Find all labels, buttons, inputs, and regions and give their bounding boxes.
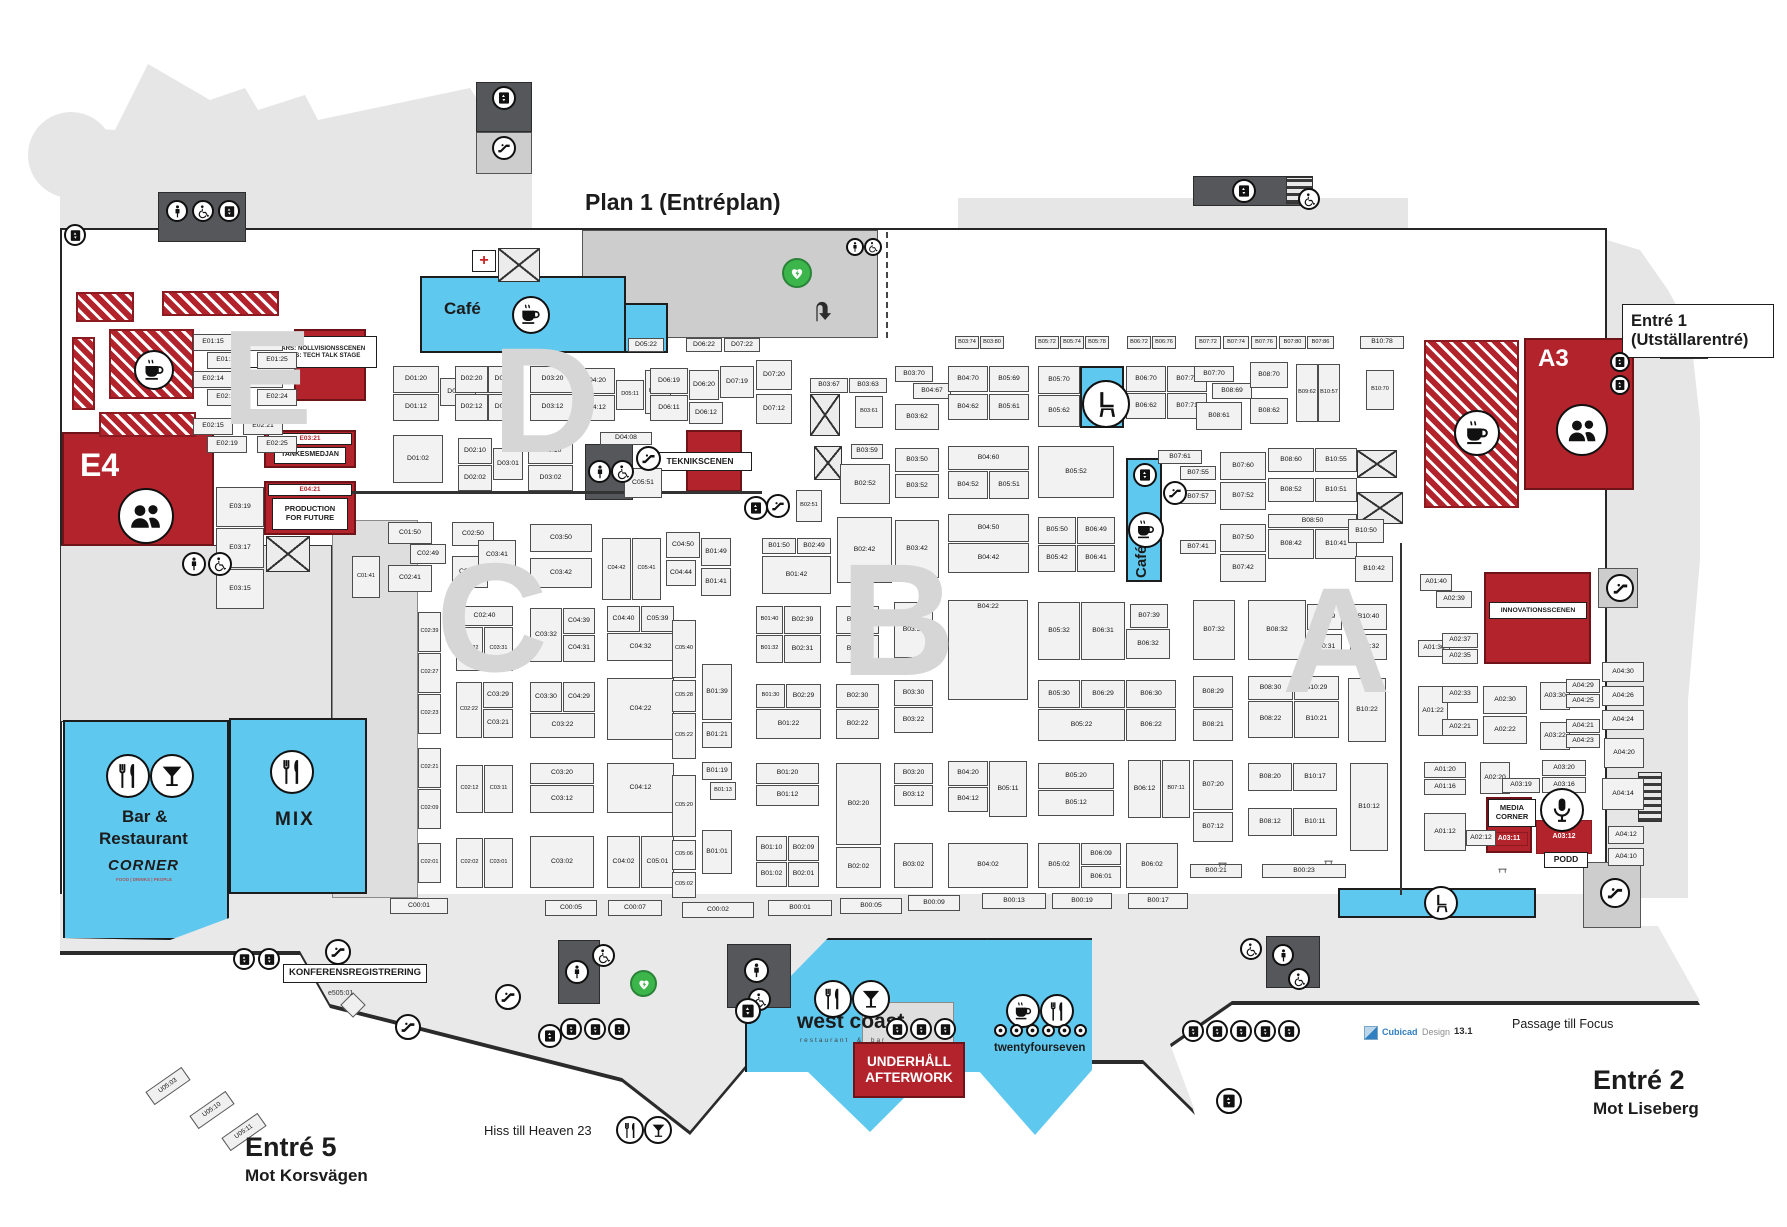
booth-B08:12: B08:12 bbox=[1248, 808, 1292, 836]
booth-C05:22: C05:22 bbox=[672, 713, 696, 759]
booth-C00:07: C00:07 bbox=[608, 900, 662, 916]
coffee-icon bbox=[512, 296, 550, 334]
booth-A04:14: A04:14 bbox=[1602, 778, 1644, 810]
booth-B05:20: B05:20 bbox=[1038, 763, 1114, 789]
escalator-icon bbox=[492, 136, 516, 160]
booth-B05:42: B05:42 bbox=[1038, 545, 1076, 572]
booth-B01:10: B01:10 bbox=[756, 836, 787, 861]
booth-D02:12: D02:12 bbox=[455, 394, 488, 421]
martini-icon bbox=[852, 980, 890, 1018]
booth-B06:70: B06:70 bbox=[1126, 366, 1166, 392]
booth-C05:20: C05:20 bbox=[672, 775, 696, 837]
booth-B07:11: B07:11 bbox=[1162, 760, 1190, 818]
booth-A02:39: A02:39 bbox=[1436, 591, 1472, 608]
escalator-icon bbox=[1600, 878, 1630, 908]
table-icon bbox=[1214, 856, 1230, 872]
booth-B03:63: B03:63 bbox=[849, 378, 887, 393]
chair-icon bbox=[1082, 380, 1130, 428]
booth-C02:09: C02:09 bbox=[418, 789, 441, 829]
booth-B07:74: B07:74 bbox=[1223, 336, 1249, 349]
coffee-icon bbox=[1006, 994, 1040, 1028]
booth-B05:70: B05:70 bbox=[1038, 366, 1080, 394]
booth-B04:60: B04:60 bbox=[948, 446, 1029, 470]
booth-B03:61: B03:61 bbox=[855, 396, 883, 428]
booth-B06:76: B06:76 bbox=[1152, 336, 1176, 349]
elevator-icon bbox=[744, 496, 768, 520]
map-label: Passage till Focus bbox=[1512, 1018, 1613, 1032]
booth-B08:62: B08:62 bbox=[1250, 398, 1288, 424]
hall-letter-A: A bbox=[1282, 565, 1390, 715]
hall-letter-B: B bbox=[840, 540, 956, 700]
booth-B05:51: B05:51 bbox=[989, 471, 1029, 499]
forkknife-icon bbox=[1040, 994, 1074, 1028]
booth-C03:01: C03:01 bbox=[484, 838, 513, 888]
booth-B01:42: B01:42 bbox=[762, 556, 831, 594]
elevator-icon bbox=[1230, 1020, 1252, 1042]
booth-B02:51: B02:51 bbox=[796, 490, 822, 522]
escalator-icon bbox=[325, 939, 351, 965]
toilet-icon bbox=[588, 460, 611, 483]
booth-B06:12: B06:12 bbox=[1128, 760, 1161, 818]
booth-B04:42: B04:42 bbox=[948, 543, 1029, 573]
stairs-x-b1 bbox=[810, 394, 840, 436]
elevator-icon bbox=[258, 948, 280, 970]
booth-B02:49: B02:49 bbox=[797, 538, 831, 554]
booth-B03:62: B03:62 bbox=[895, 404, 939, 430]
map-label: Cubicad bbox=[1382, 1028, 1418, 1038]
booth-B06:01: B06:01 bbox=[1081, 866, 1121, 888]
map-label: Entré 2 bbox=[1593, 1066, 1685, 1096]
sign-innovationsscenen: INNOVATIONSSCENEN bbox=[1489, 602, 1587, 619]
booth-B07:72: B07:72 bbox=[1195, 336, 1221, 349]
elevator-icon bbox=[538, 1024, 562, 1048]
booth-B01:49: B01:49 bbox=[701, 538, 731, 566]
booth-B03:12: B03:12 bbox=[894, 785, 933, 806]
sign-production-id: E04:21 bbox=[268, 484, 352, 496]
booth-B05:22: B05:22 bbox=[1038, 709, 1125, 741]
wheelchair-icon bbox=[208, 552, 232, 576]
booth-A04:26: A04:26 bbox=[1602, 686, 1644, 706]
map-label: twentyfourseven bbox=[994, 1042, 1085, 1055]
top-corridor bbox=[958, 198, 1408, 232]
booth-B05:50: B05:50 bbox=[1038, 517, 1076, 544]
booth-B06:32: B06:32 bbox=[1126, 629, 1170, 659]
booth-B01:02: B01:02 bbox=[756, 862, 787, 887]
booth-B00:01: B00:01 bbox=[768, 900, 832, 916]
stairs-x-e bbox=[266, 536, 310, 572]
booth-D02:10: D02:10 bbox=[458, 438, 492, 464]
booth-B10:51: B10:51 bbox=[1315, 478, 1357, 502]
map-label: Restaurant bbox=[99, 830, 188, 849]
booth-B01:30: B01:30 bbox=[756, 684, 785, 708]
booth-B05:72: B05:72 bbox=[1035, 336, 1059, 349]
booth-A04:30: A04:30 bbox=[1602, 662, 1644, 682]
toilet-icon bbox=[166, 200, 188, 222]
booth-C00:02: C00:02 bbox=[682, 902, 754, 918]
defib-icon bbox=[782, 258, 812, 288]
booth-B10:70: B10:70 bbox=[1366, 370, 1394, 410]
map-label: Mot Liseberg bbox=[1593, 1100, 1699, 1119]
forkknife-icon bbox=[270, 750, 314, 794]
booth-A02:33: A02:33 bbox=[1442, 686, 1478, 703]
booth-D05:11: D05:11 bbox=[616, 380, 644, 410]
booth-B02:22: B02:22 bbox=[836, 709, 879, 739]
dot-icon bbox=[1026, 1024, 1039, 1037]
booth-B07:70: B07:70 bbox=[1194, 366, 1234, 382]
toilet-icon bbox=[182, 552, 206, 576]
booth-B02:29: B02:29 bbox=[786, 684, 821, 708]
booth-C02:41: C02:41 bbox=[388, 565, 432, 592]
booth-B05:02: B05:02 bbox=[1038, 843, 1080, 888]
booth-D02:20: D02:20 bbox=[455, 366, 488, 393]
page-title: Plan 1 (Entréplan) bbox=[585, 190, 781, 215]
booth-B07:20: B07:20 bbox=[1193, 760, 1233, 810]
booth-C01:41: C01:41 bbox=[352, 556, 380, 598]
elevator-icon bbox=[1216, 1088, 1242, 1114]
booth-B07:42: B07:42 bbox=[1220, 554, 1266, 582]
booth-B02:02: B02:02 bbox=[836, 847, 881, 888]
booth-E03:19: E03:19 bbox=[216, 487, 264, 527]
booth-B04:52: B04:52 bbox=[948, 471, 988, 499]
booth-B10:55: B10:55 bbox=[1315, 448, 1357, 472]
booth-C03:12: C03:12 bbox=[530, 785, 594, 813]
booth-B08:60: B08:60 bbox=[1268, 448, 1314, 472]
coffee-icon bbox=[134, 350, 174, 390]
booth-C05:06: C05:06 bbox=[672, 840, 696, 870]
dot-icon bbox=[1010, 1024, 1023, 1037]
booth-B01:12: B01:12 bbox=[756, 785, 819, 806]
booth-C00:05: C00:05 bbox=[545, 900, 597, 916]
wheelchair-icon bbox=[864, 238, 882, 256]
booth-B06:49: B06:49 bbox=[1077, 517, 1115, 544]
booth-B06:31: B06:31 bbox=[1081, 602, 1125, 660]
booth-B05:52: B05:52 bbox=[1038, 446, 1114, 498]
booth-B06:02: B06:02 bbox=[1126, 843, 1178, 888]
elevator-icon bbox=[218, 200, 240, 222]
booth-B02:01: B02:01 bbox=[788, 862, 819, 887]
booth-B05:61: B05:61 bbox=[989, 394, 1029, 420]
table-icon bbox=[1494, 862, 1510, 878]
elevator-icon bbox=[1278, 1020, 1300, 1042]
booth-B05:32: B05:32 bbox=[1038, 602, 1080, 660]
booth-C05:40: C05:40 bbox=[672, 620, 696, 678]
escalator-icon bbox=[395, 1014, 421, 1040]
booth-B03:70: B03:70 bbox=[895, 366, 933, 382]
elevator-icon bbox=[1182, 1020, 1204, 1042]
booth-C04:44: C04:44 bbox=[666, 560, 696, 586]
booth-B06:29: B06:29 bbox=[1081, 680, 1125, 708]
booth-B01:32: B01:32 bbox=[756, 635, 783, 663]
martini-icon bbox=[644, 1116, 672, 1144]
booth-D01:12: D01:12 bbox=[393, 394, 439, 421]
map-label: Entré 5 bbox=[245, 1133, 337, 1163]
elevator-icon bbox=[560, 1018, 582, 1040]
sign-konferensregistrering: KONFERENSREGISTRERING bbox=[283, 964, 427, 983]
sign-teknikscenen: TEKNIKSCENEN bbox=[648, 452, 752, 471]
hatch-e-3 bbox=[72, 337, 95, 410]
sign-podd: PODD bbox=[1544, 852, 1588, 868]
booth-B07:60: B07:60 bbox=[1220, 452, 1266, 480]
booth-C04:32: C04:32 bbox=[607, 633, 674, 661]
stairs-x-b2 bbox=[814, 446, 842, 480]
coffee-icon bbox=[1128, 512, 1164, 548]
booth-B06:72: B06:72 bbox=[1127, 336, 1151, 349]
mix-restaurant-area bbox=[229, 718, 367, 894]
wheelchair-icon bbox=[1288, 968, 1310, 990]
forkknife-icon bbox=[814, 980, 852, 1018]
dot-icon bbox=[1058, 1024, 1071, 1037]
people-icon bbox=[118, 488, 174, 544]
booth-A02:35: A02:35 bbox=[1442, 649, 1478, 664]
mic-icon bbox=[1540, 788, 1584, 832]
booth-A02:21: A02:21 bbox=[1442, 719, 1478, 736]
booth-D06:22: D06:22 bbox=[686, 338, 722, 352]
map-label: restaurant & bar bbox=[800, 1037, 886, 1044]
map-label: 13.1 bbox=[1454, 1027, 1473, 1037]
booth-D06:12: D06:12 bbox=[689, 402, 723, 424]
elevator-icon bbox=[1610, 352, 1630, 372]
booth-A01:16: A01:16 bbox=[1424, 779, 1466, 795]
booth-C04:40: C04:40 bbox=[607, 606, 640, 632]
elevator-icon bbox=[1133, 463, 1157, 487]
booth-C01:50: C01:50 bbox=[388, 522, 432, 544]
booth-u05-03: U05:03 bbox=[145, 1067, 190, 1105]
stage-underhall: UNDERHÅLL AFTERWORK bbox=[853, 1042, 965, 1098]
booth-B06:30: B06:30 bbox=[1126, 680, 1176, 708]
elevator-icon bbox=[1206, 1020, 1228, 1042]
booth-A02:12: A02:12 bbox=[1466, 830, 1496, 846]
booth-B03:59: B03:59 bbox=[851, 444, 883, 459]
booth-B04:12: B04:12 bbox=[948, 787, 988, 812]
booth-B07:55: B07:55 bbox=[1180, 466, 1216, 480]
booth-B02:52: B02:52 bbox=[840, 464, 890, 504]
booth-B05:74: B05:74 bbox=[1060, 336, 1084, 349]
booth-D04:08: D04:08 bbox=[600, 432, 652, 445]
booth-B08:70: B08:70 bbox=[1250, 362, 1288, 388]
forkknife-icon bbox=[106, 754, 150, 798]
hall-letter-C: C bbox=[436, 540, 548, 695]
booth-B10:11: B10:11 bbox=[1293, 808, 1337, 836]
booth-B01:40: B01:40 bbox=[756, 606, 783, 634]
chair-icon bbox=[1424, 886, 1458, 920]
booth-A04:20: A04:20 bbox=[1604, 738, 1644, 768]
map-label: A3 bbox=[1538, 346, 1569, 372]
booth-B07:12: B07:12 bbox=[1193, 812, 1233, 842]
booth-B01:13: B01:13 bbox=[710, 782, 736, 800]
booth-B03:52: B03:52 bbox=[895, 474, 939, 498]
booth-B01:19: B01:19 bbox=[702, 762, 732, 780]
booth-C05:39: C05:39 bbox=[641, 606, 674, 632]
booth-B02:31: B02:31 bbox=[784, 635, 821, 663]
wheelchair-icon bbox=[192, 200, 214, 222]
booth-C04:12: C04:12 bbox=[607, 763, 674, 813]
booth-A01:20: A01:20 bbox=[1424, 762, 1466, 778]
booth-A04:21: A04:21 bbox=[1566, 719, 1600, 733]
booth-B00:05: B00:05 bbox=[840, 898, 902, 914]
booth-D06:20: D06:20 bbox=[689, 370, 719, 400]
booth-A04:12: A04:12 bbox=[1608, 826, 1644, 844]
sign-media-corner: MEDIA CORNER bbox=[1488, 799, 1536, 827]
booth-C02:01: C02:01 bbox=[418, 843, 441, 883]
booth-A04:29: A04:29 bbox=[1566, 679, 1600, 693]
booth-C03:22: C03:22 bbox=[530, 713, 595, 738]
map-label: E4 bbox=[80, 448, 119, 483]
booth-D07:19: D07:19 bbox=[720, 366, 754, 398]
map-label: Mot Korsvägen bbox=[245, 1167, 368, 1186]
dot-icon bbox=[1042, 1024, 1055, 1037]
booth-B07:61: B07:61 bbox=[1158, 450, 1202, 464]
booth-B08:42: B08:42 bbox=[1268, 529, 1314, 559]
escalator-icon bbox=[495, 984, 521, 1010]
forkknife-icon bbox=[616, 1116, 644, 1144]
booth-B08:69: B08:69 bbox=[1212, 383, 1252, 399]
elevator-icon bbox=[735, 998, 761, 1024]
booth-B07:39: B07:39 bbox=[1130, 604, 1168, 628]
elevator-icon bbox=[492, 86, 516, 110]
map-label: MIX bbox=[275, 810, 315, 831]
martini-icon bbox=[150, 754, 194, 798]
booth-B07:50: B07:50 bbox=[1220, 524, 1266, 552]
booth-B03:02: B03:02 bbox=[894, 843, 933, 888]
table-icon bbox=[1320, 854, 1336, 870]
booth-A01:40: A01:40 bbox=[1420, 574, 1452, 591]
wheelchair-icon bbox=[592, 944, 615, 967]
wheelchair-icon bbox=[611, 460, 634, 483]
booth-B02:09: B02:09 bbox=[788, 836, 819, 861]
booth-D05:22: D05:22 bbox=[628, 338, 664, 352]
elevator-icon bbox=[1610, 375, 1630, 395]
booth-C04:39: C04:39 bbox=[563, 608, 595, 634]
booth-C02:02: C02:02 bbox=[456, 838, 483, 888]
booth-B04:50: B04:50 bbox=[948, 514, 1029, 542]
stairs-x-b10-1 bbox=[1357, 450, 1397, 478]
booth-B08:20: B08:20 bbox=[1248, 763, 1292, 791]
booth-B10:50: B10:50 bbox=[1348, 519, 1384, 543]
elevator-icon bbox=[934, 1018, 956, 1040]
booth-B00:19: B00:19 bbox=[1052, 893, 1112, 909]
booth-B05:78: B05:78 bbox=[1085, 336, 1109, 349]
defib-icon bbox=[630, 970, 657, 997]
booth-D02:02: D02:02 bbox=[458, 465, 492, 491]
booth-B00:09: B00:09 bbox=[908, 895, 960, 911]
booth-B02:39: B02:39 bbox=[784, 606, 821, 634]
booth-B08:50: B08:50 bbox=[1268, 514, 1357, 528]
escalator-icon bbox=[766, 494, 790, 518]
elevator-icon bbox=[64, 224, 86, 246]
booth-B06:62: B06:62 bbox=[1126, 393, 1166, 419]
booth-A02:30: A02:30 bbox=[1483, 686, 1527, 714]
booth-A02:22: A02:22 bbox=[1483, 716, 1527, 744]
booth-B03:80: B03:80 bbox=[980, 336, 1004, 349]
booth-C03:20: C03:20 bbox=[530, 763, 594, 784]
floor-plan: Plan 1 (Entréplan) Service Center A03:12… bbox=[0, 0, 1787, 1227]
booth-C03:02: C03:02 bbox=[530, 836, 594, 888]
sign-production: PRODUCTION FOR FUTURE bbox=[272, 498, 348, 530]
booth-B06:09: B06:09 bbox=[1081, 843, 1121, 865]
escalator-icon bbox=[636, 446, 661, 471]
booth-A04:24: A04:24 bbox=[1602, 710, 1644, 730]
booth-B04:22: B04:22 bbox=[948, 600, 1028, 700]
north-wing-blob bbox=[28, 112, 114, 198]
coffee-icon bbox=[1454, 410, 1500, 456]
booth-B01:22: B01:22 bbox=[756, 709, 821, 739]
stairs-x-service bbox=[498, 248, 540, 282]
booth-B05:11: B05:11 bbox=[989, 761, 1027, 817]
elevator-icon bbox=[910, 1018, 932, 1040]
wheelchair-icon bbox=[1240, 938, 1262, 960]
booth-B10:12: B10:12 bbox=[1350, 763, 1388, 851]
escalator-icon bbox=[1163, 481, 1187, 505]
booth-B08:52: B08:52 bbox=[1268, 478, 1314, 502]
toilet-icon bbox=[565, 960, 589, 984]
toilet-icon bbox=[1272, 944, 1294, 966]
cubicad-logo-cube bbox=[1364, 1026, 1378, 1040]
map-label: CORNER bbox=[108, 858, 179, 875]
booth-B06:41: B06:41 bbox=[1077, 545, 1115, 572]
booth-B04:02: B04:02 bbox=[948, 843, 1028, 888]
booth-B10:78: B10:78 bbox=[1360, 336, 1404, 349]
wall-dc bbox=[332, 491, 762, 494]
booth-C05:41: C05:41 bbox=[632, 538, 661, 600]
elevator-icon bbox=[584, 1018, 606, 1040]
booth-B03:20: B03:20 bbox=[894, 763, 933, 784]
booth-A03:19: A03:19 bbox=[1502, 778, 1540, 793]
map-label: Café bbox=[444, 300, 481, 319]
booth-D01:20: D01:20 bbox=[393, 366, 439, 393]
booth-u05-10: U05:10 bbox=[189, 1091, 234, 1129]
booth-B01:20: B01:20 bbox=[756, 763, 819, 784]
sign-firstaid: + bbox=[472, 250, 496, 272]
booth-B00:17: B00:17 bbox=[1128, 893, 1188, 909]
booth-B05:69: B05:69 bbox=[989, 366, 1029, 392]
map-label: Design bbox=[1422, 1028, 1450, 1038]
booth-B07:80: B07:80 bbox=[1279, 336, 1306, 349]
toilet-icon bbox=[846, 238, 864, 256]
booth-C04:42: C04:42 bbox=[602, 538, 631, 600]
booth-C00:01: C00:01 bbox=[390, 898, 448, 914]
booth-B10:57: B10:57 bbox=[1318, 364, 1340, 422]
booth-B03:67: B03:67 bbox=[810, 378, 848, 393]
booth-B06:22: B06:22 bbox=[1126, 709, 1176, 741]
map-label: Bar & bbox=[122, 808, 167, 827]
uturn-icon bbox=[800, 288, 844, 332]
booth-A01:12: A01:12 bbox=[1424, 813, 1466, 851]
booth-B07:41: B07:41 bbox=[1180, 540, 1216, 554]
people-icon bbox=[1556, 404, 1608, 456]
booth-B08:61: B08:61 bbox=[1196, 402, 1242, 430]
elevator-icon bbox=[1232, 179, 1256, 203]
hatch-e-4 bbox=[99, 412, 196, 437]
booth-A04:25: A04:25 bbox=[1566, 694, 1600, 708]
escalator-icon bbox=[1606, 574, 1634, 602]
map-label: Café bbox=[1134, 545, 1151, 578]
booth-B08:21: B08:21 bbox=[1193, 709, 1233, 741]
booth-C04:29: C04:29 bbox=[563, 682, 595, 712]
booth-B07:76: B07:76 bbox=[1251, 336, 1277, 349]
elevator-icon bbox=[886, 1018, 908, 1040]
booth-B04:70: B04:70 bbox=[948, 366, 988, 392]
booth-B03:50: B03:50 bbox=[895, 448, 939, 472]
booth-D07:22: D07:22 bbox=[724, 338, 760, 352]
map-label: e505:01 bbox=[328, 990, 353, 998]
booth-B00:13: B00:13 bbox=[982, 893, 1046, 909]
booth-B05:62: B05:62 bbox=[1038, 395, 1080, 427]
booth-B01:01: B01:01 bbox=[702, 830, 732, 874]
booth-C04:50: C04:50 bbox=[666, 532, 700, 558]
booth-D01:02: D01:02 bbox=[393, 435, 443, 483]
booth-B02:20: B02:20 bbox=[836, 763, 881, 845]
hall-letter-E: E bbox=[222, 310, 312, 445]
